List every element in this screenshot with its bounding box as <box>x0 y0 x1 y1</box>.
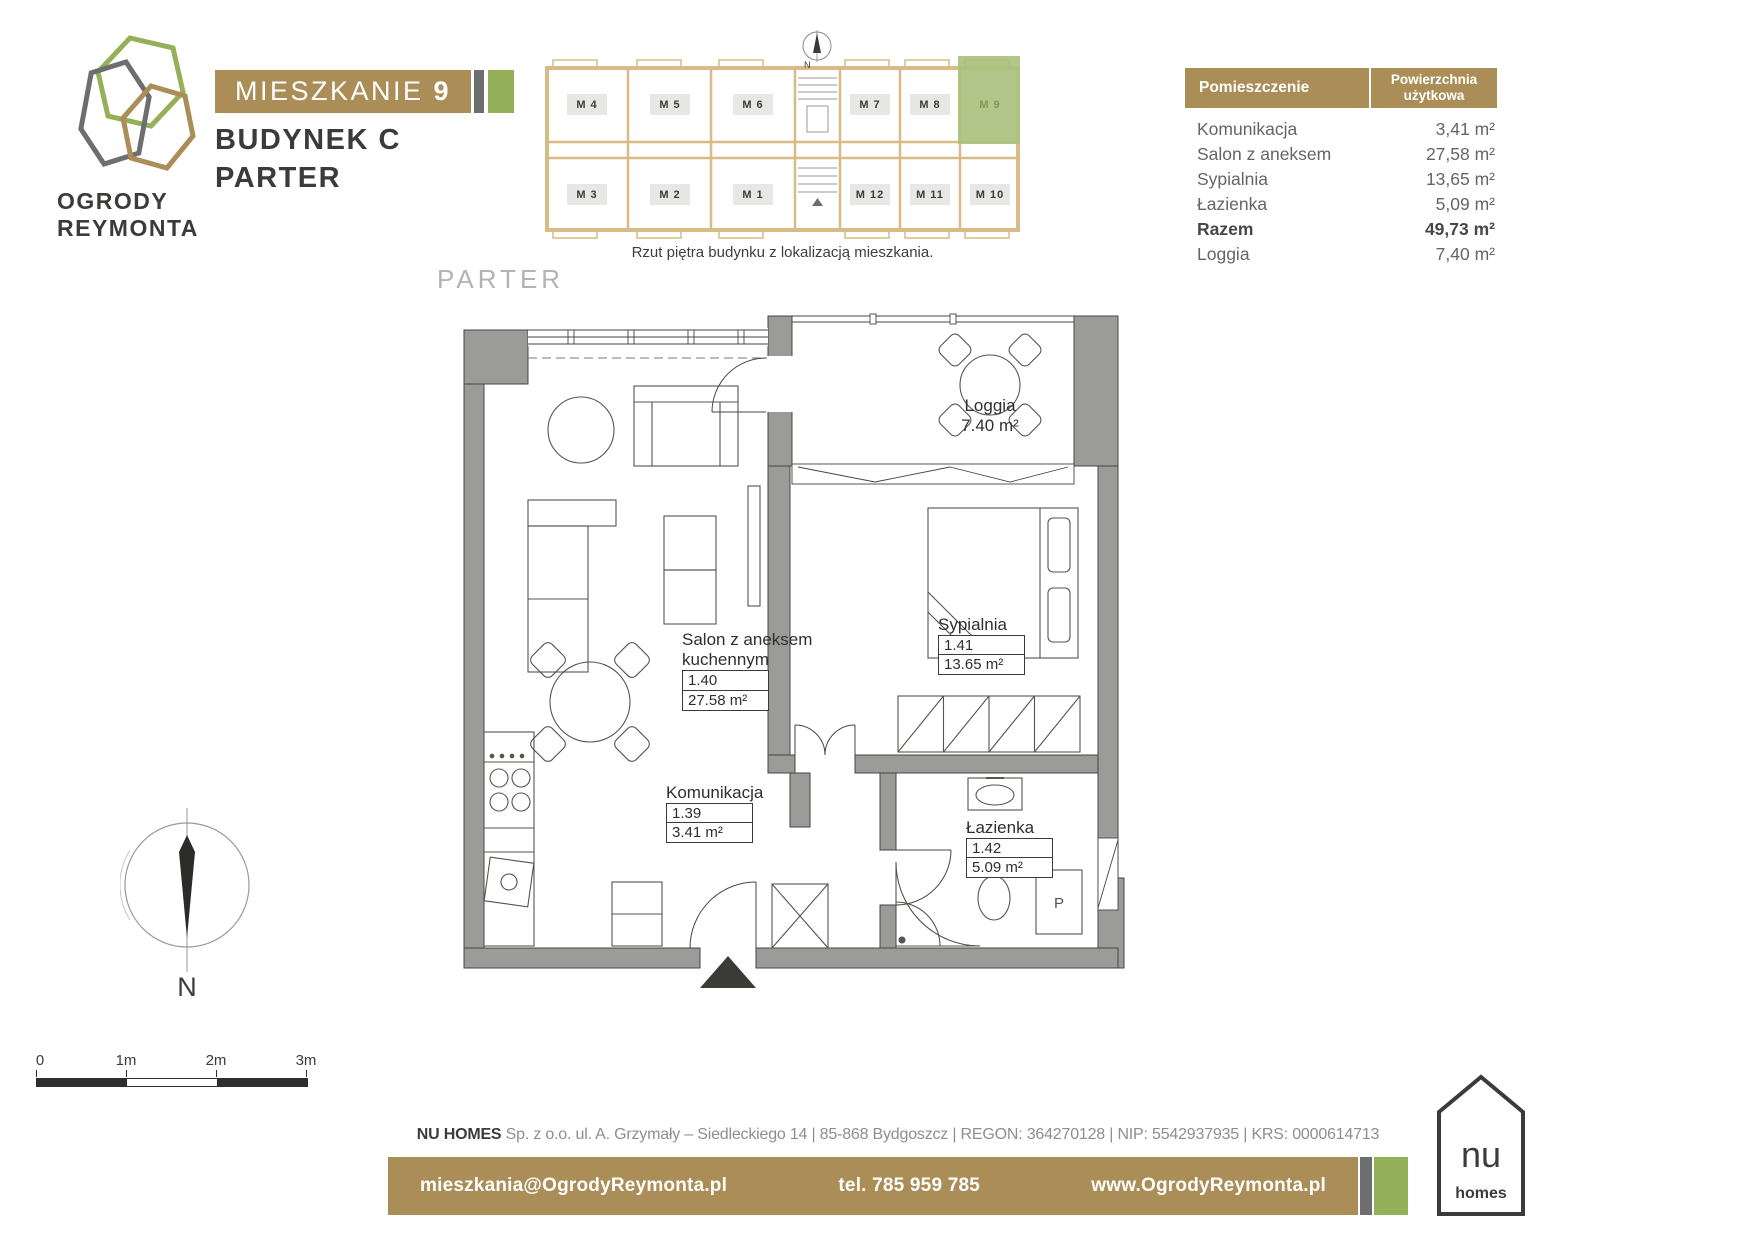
lazienka-number: 1.42 <box>966 838 1053 859</box>
row-area: 3,41 m² <box>1436 119 1497 140</box>
salon-name-line1: Salon z aneksem <box>682 630 812 650</box>
shelf <box>664 516 716 570</box>
hall-cabinet <box>612 882 828 948</box>
logo-homes-text: homes <box>1455 1185 1507 1202</box>
wardrobe <box>898 696 1080 752</box>
komunikacja-number: 1.39 <box>666 803 753 824</box>
row-area: 5,09 m² <box>1436 194 1497 215</box>
loggia-area: 7.40 m² <box>920 416 1060 436</box>
loggia-label: Loggia 7.40 m² <box>920 396 1060 436</box>
scale-label-2m: 2m <box>206 1052 227 1069</box>
brand-line2: REYMONTA <box>57 215 199 242</box>
flyer-page: { "colors":{"gold":"#ab8e57","green":"#9… <box>0 0 1754 1240</box>
sypialnia-name: Sypialnia <box>938 615 1025 635</box>
row-room: Razem <box>1185 219 1253 240</box>
compass-icon: N <box>120 800 265 1000</box>
row-area: 27,58 m² <box>1426 144 1497 165</box>
shelf <box>664 570 716 624</box>
header-area-line1: Powierzchnia <box>1391 72 1477 88</box>
salon-number: 1.40 <box>682 670 769 691</box>
table-row: Salon z aneksem 27,58 m² <box>1185 142 1497 167</box>
lazienka-area: 5.09 m² <box>966 857 1053 878</box>
contact-email[interactable]: mieszkania@OgrodyReymonta.pl <box>420 1175 727 1197</box>
sofa <box>528 500 616 672</box>
kitchen <box>484 732 534 946</box>
logo-nu-text: nu <box>1461 1134 1501 1175</box>
unit-chip-m2: M 2 <box>650 184 690 205</box>
unit-chip-m6: M 6 <box>733 94 773 115</box>
unit-chip-m10: M 10 <box>970 184 1010 205</box>
company-details: Sp. z o.o. ul. A. Grzymały – Siedleckieg… <box>501 1126 1379 1143</box>
contact-bar: mieszkania@OgrodyReymonta.pl tel. 785 95… <box>388 1157 1358 1215</box>
unit-chip-m5: M 5 <box>650 94 690 115</box>
contact-website[interactable]: www.OgrodyReymonta.pl <box>1091 1175 1326 1197</box>
washbasin <box>968 778 1022 810</box>
unit-chip-m8: M 8 <box>910 94 950 115</box>
unit-chip-m9-highlighted: M 9 <box>970 94 1010 115</box>
kitchen-sink <box>484 857 534 907</box>
floor-title: PARTER <box>215 162 341 195</box>
header-area-line2: użytkowa <box>1404 88 1465 104</box>
apartment-title: MIESZKANIE 9 <box>215 70 514 113</box>
brand-name: OGRODY REYMONTA <box>57 188 199 242</box>
area-table-header: Pomieszczenie Powierzchnia użytkowa <box>1185 68 1497 108</box>
lazienka-label: Łazienka 1.42 5.09 m² <box>966 818 1053 878</box>
area-table: Pomieszczenie Powierzchnia użytkowa Komu… <box>1185 68 1497 267</box>
banner-green-accent <box>488 70 514 113</box>
building-overview-plan: N <box>545 28 1020 240</box>
dining-table <box>528 640 652 764</box>
building-overview: N M 4 M 5 M 6 M 7 M 8 M 9 M 3 M 2 M 1 M … <box>545 28 1020 268</box>
plan-floor-label: PARTER <box>437 264 564 295</box>
nu-homes-logo: nu homes <box>1437 1072 1525 1218</box>
unit-chip-m11: M 11 <box>910 184 950 205</box>
apartment-word: MIESZKANIE <box>235 76 424 107</box>
komunikacja-area: 3.41 m² <box>666 822 753 843</box>
row-area: 13,65 m² <box>1426 169 1497 190</box>
unit-chip-m3: M 3 <box>567 184 607 205</box>
company-name: NU HOMES <box>417 1126 502 1143</box>
row-room: Loggia <box>1185 244 1250 265</box>
sypialnia-area: 13.65 m² <box>938 654 1025 675</box>
scale-label-3m: 3m <box>296 1052 317 1069</box>
building-letter: C <box>378 124 400 156</box>
entrance-arrow-icon <box>700 956 756 988</box>
overview-caption: Rzut piętra budynku z lokalizacją mieszk… <box>545 244 1020 261</box>
lazienka-name: Łazienka <box>966 818 1053 838</box>
washer-marker: P <box>1054 895 1064 912</box>
apartment-number: 9 <box>434 76 452 107</box>
sypialnia-label: Sypialnia 1.41 13.65 m² <box>938 615 1025 675</box>
unit-chip-m1: M 1 <box>733 184 773 205</box>
salon-label: Salon z aneksem kuchennym 1.40 27.58 m² <box>682 630 812 711</box>
row-room: Komunikacja <box>1185 119 1297 140</box>
row-area: 7,40 m² <box>1436 244 1497 265</box>
overview-north-icon: N <box>803 30 831 70</box>
brand-line1: OGRODY <box>57 188 199 215</box>
sypialnia-number: 1.41 <box>938 635 1025 656</box>
header-area: Powierzchnia użytkowa <box>1371 68 1497 108</box>
contact-phone: tel. 785 959 785 <box>838 1175 980 1197</box>
apartment-banner: MIESZKANIE 9 <box>215 70 471 113</box>
banner-gray-accent <box>474 70 484 113</box>
scale-bar-segments <box>36 1078 308 1087</box>
table-row: Sypialnia 13,65 m² <box>1185 167 1497 192</box>
unit-chip-m12: M 12 <box>850 184 890 205</box>
komunikacja-name: Komunikacja <box>666 783 763 803</box>
row-room: Łazienka <box>1185 194 1267 215</box>
brand-logo-icon <box>55 30 200 185</box>
contact-bar-green-accent <box>1374 1157 1408 1215</box>
komunikacja-label: Komunikacja 1.39 3.41 m² <box>666 783 763 843</box>
armchair <box>634 386 738 466</box>
loggia-name: Loggia <box>920 396 1060 416</box>
scale-label-0: 0 <box>36 1052 44 1069</box>
unit-chip-m7: M 7 <box>850 94 890 115</box>
tv-cabinet <box>748 486 760 606</box>
table-row-total: Razem 49,73 m² <box>1185 217 1497 242</box>
row-area: 49,73 m² <box>1425 219 1497 240</box>
table-row: Komunikacja 3,41 m² <box>1185 117 1497 142</box>
header-room: Pomieszczenie <box>1185 68 1369 108</box>
salon-name-line2: kuchennym <box>682 650 812 670</box>
building-word: BUDYNEK <box>215 124 369 156</box>
company-info: NU HOMES Sp. z o.o. ul. A. Grzymały – Si… <box>388 1126 1408 1144</box>
row-room: Salon z aneksem <box>1185 144 1331 165</box>
contact-bar-gray-accent <box>1360 1157 1372 1215</box>
table-row: Łazienka 5,09 m² <box>1185 192 1497 217</box>
compass-north-label: N <box>177 972 197 1000</box>
side-table <box>548 397 614 463</box>
salon-area: 27.58 m² <box>682 690 769 711</box>
unit-chip-m4: M 4 <box>567 94 607 115</box>
scale-label-1m: 1m <box>116 1052 137 1069</box>
table-row: Loggia 7,40 m² <box>1185 242 1497 267</box>
row-room: Sypialnia <box>1185 169 1268 190</box>
building-title: BUDYNEK C <box>215 124 401 157</box>
scale-bar: 0 1m 2m 3m <box>36 1052 316 1088</box>
svg-text:N: N <box>804 60 811 70</box>
